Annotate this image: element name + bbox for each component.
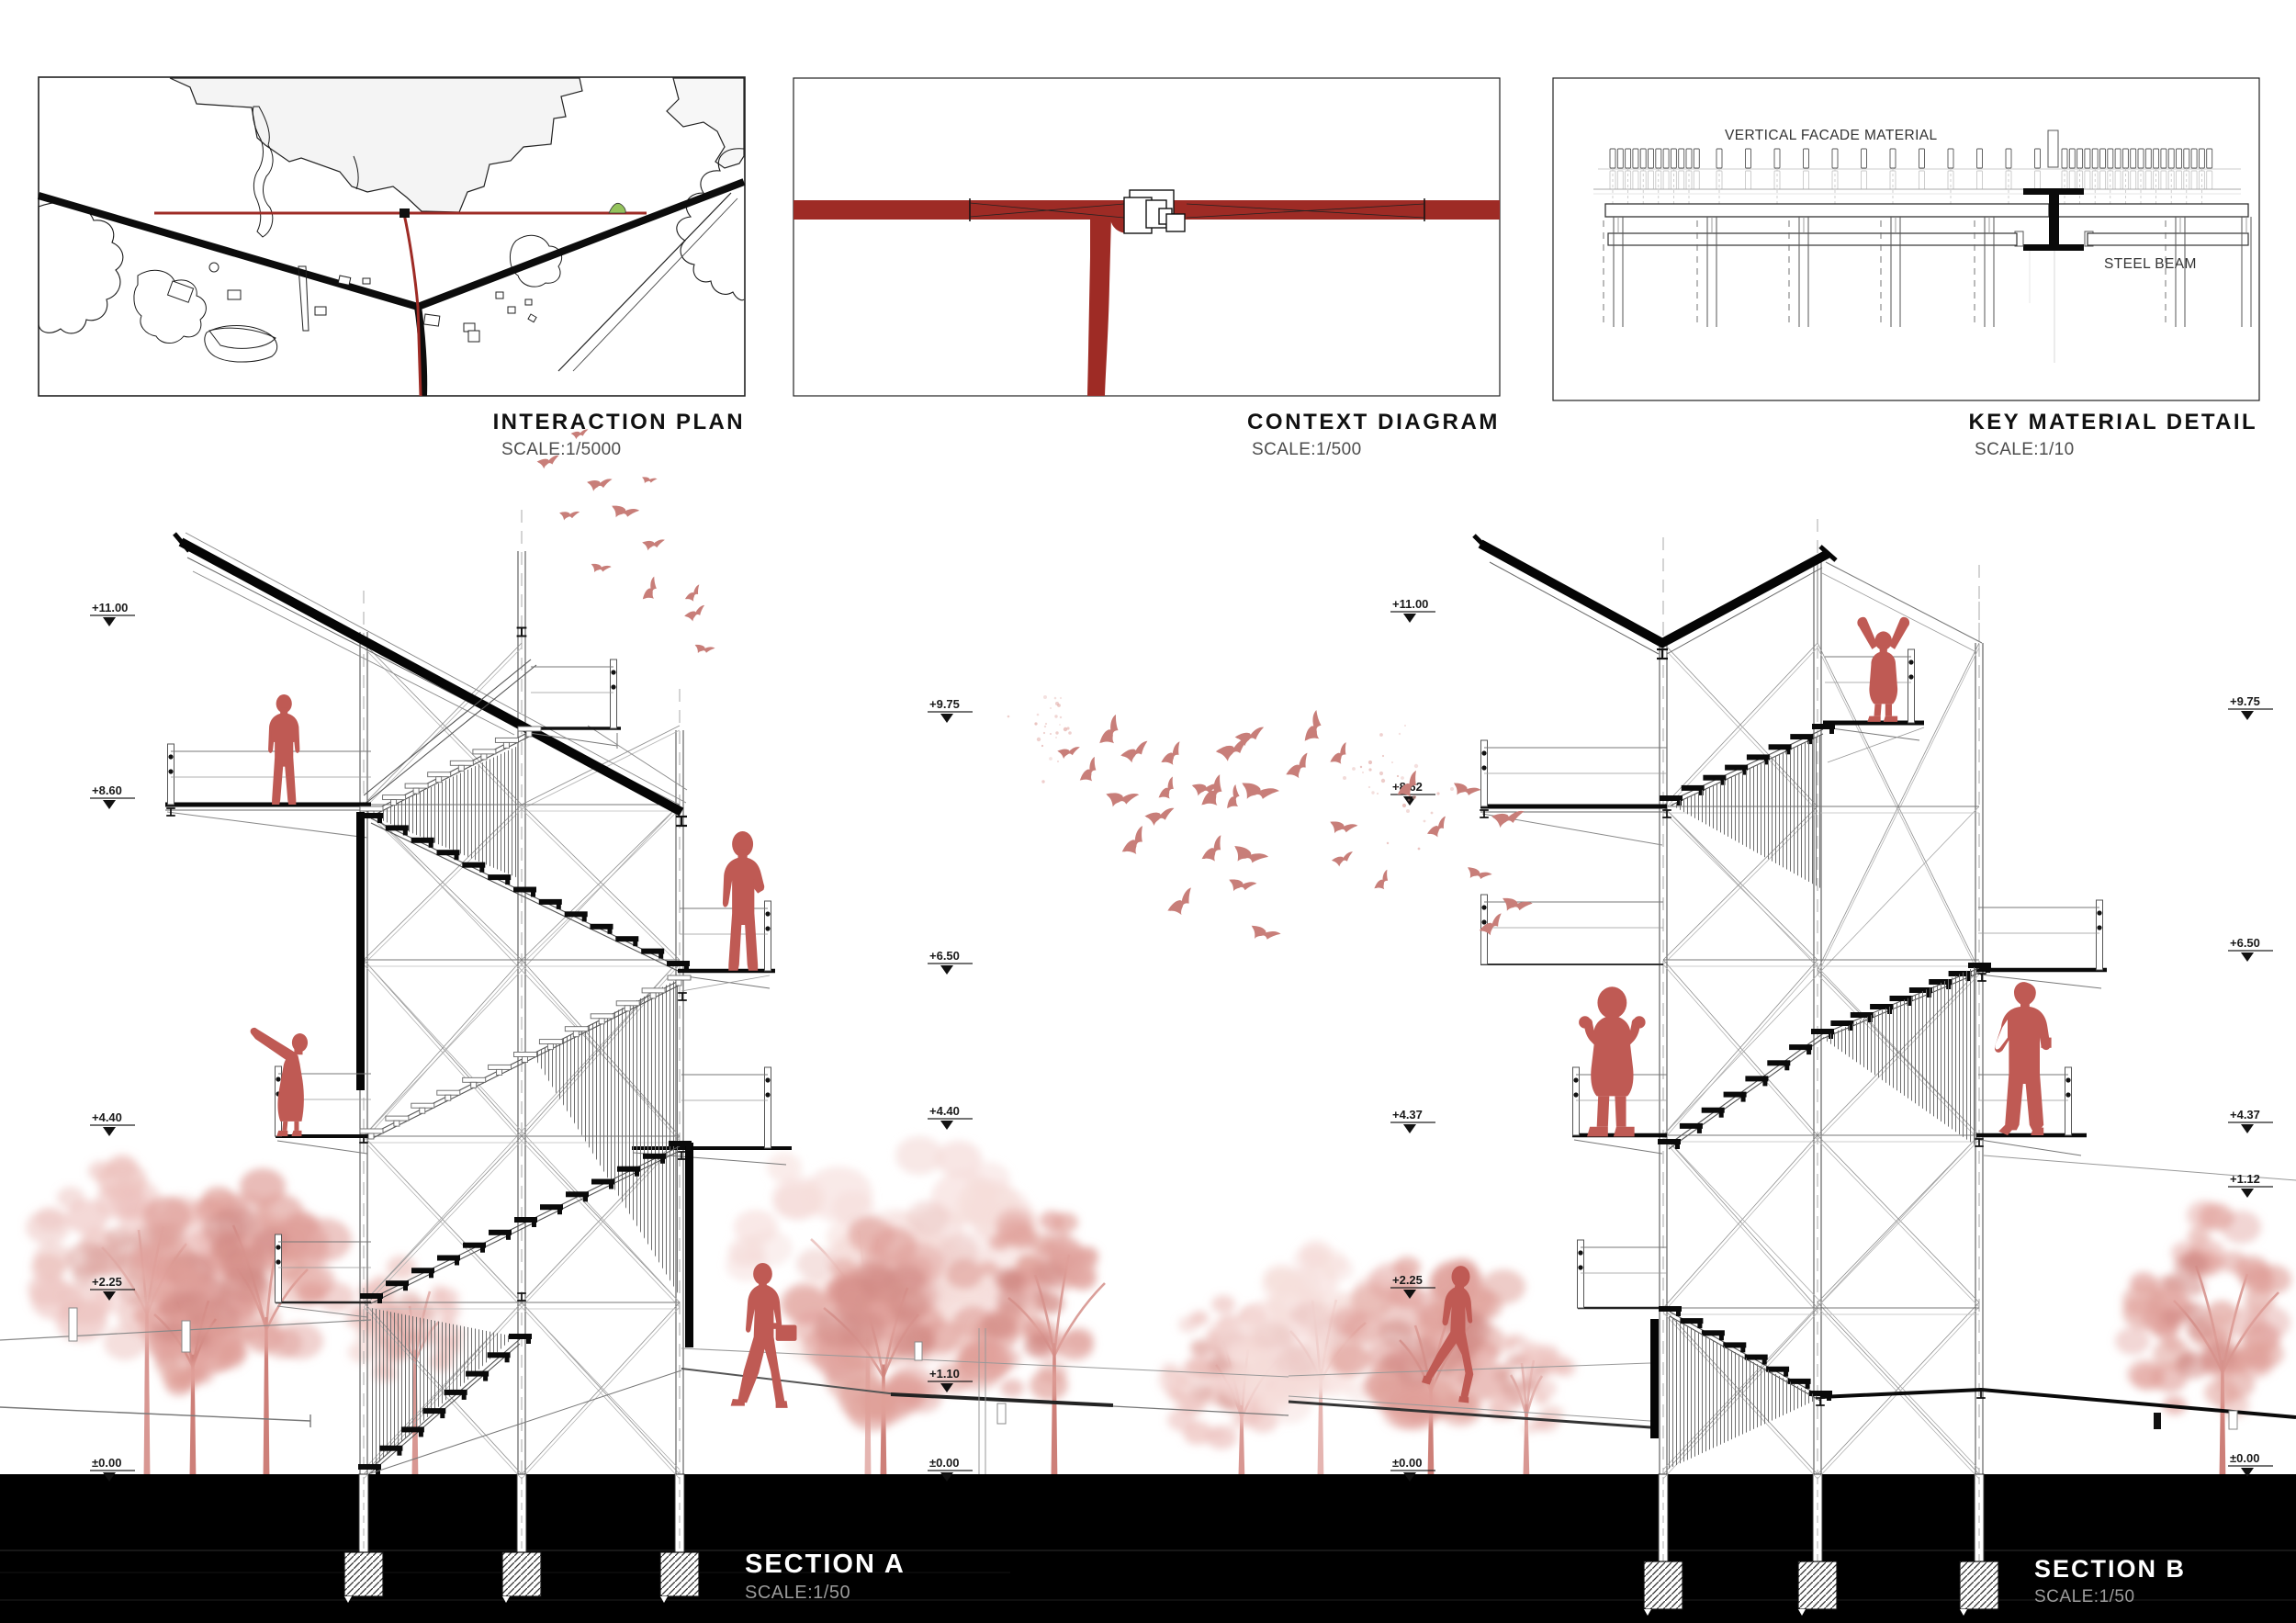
svg-text:+6.50: +6.50 xyxy=(929,949,960,963)
svg-text:CONTEXT DIAGRAM: CONTEXT DIAGRAM xyxy=(1247,410,1500,434)
svg-text:INTERACTION PLAN: INTERACTION PLAN xyxy=(493,410,745,434)
svg-text:SCALE:1/10: SCALE:1/10 xyxy=(1975,440,2075,459)
svg-text:+4.37: +4.37 xyxy=(1392,1108,1423,1121)
svg-text:+11.00: +11.00 xyxy=(92,601,128,614)
svg-text:+1.12: +1.12 xyxy=(2230,1172,2260,1186)
svg-text:+6.50: +6.50 xyxy=(2230,936,2260,950)
svg-text:+4.40: +4.40 xyxy=(929,1104,960,1118)
svg-text:±0.00: ±0.00 xyxy=(92,1456,121,1470)
svg-text:SCALE:1/5000: SCALE:1/5000 xyxy=(501,440,622,459)
svg-text:+9.75: +9.75 xyxy=(2230,694,2260,708)
svg-text:±0.00: ±0.00 xyxy=(929,1456,959,1470)
svg-text:SCALE:1/50: SCALE:1/50 xyxy=(2034,1587,2135,1606)
svg-text:+1.10: +1.10 xyxy=(929,1367,960,1381)
svg-text:±0.00: ±0.00 xyxy=(1392,1456,1422,1470)
svg-text:+2.25: +2.25 xyxy=(1392,1273,1423,1287)
svg-text:+9.75: +9.75 xyxy=(929,697,960,711)
svg-text:SECTION B: SECTION B xyxy=(2034,1555,2186,1583)
svg-text:+2.25: +2.25 xyxy=(92,1275,122,1289)
svg-text:SCALE:1/500: SCALE:1/500 xyxy=(1252,440,1362,459)
svg-text:+11.00: +11.00 xyxy=(1392,597,1428,611)
svg-text:+8.60: +8.60 xyxy=(92,783,122,797)
svg-text:SECTION A: SECTION A xyxy=(745,1550,906,1579)
svg-text:±0.00: ±0.00 xyxy=(2230,1451,2259,1465)
svg-text:KEY MATERIAL DETAIL: KEY MATERIAL DETAIL xyxy=(1969,410,2258,434)
svg-text:VERTICAL FACADE MATERIAL: VERTICAL FACADE MATERIAL xyxy=(1725,128,1938,143)
svg-text:+4.40: +4.40 xyxy=(92,1110,122,1124)
svg-text:STEEL BEAM: STEEL BEAM xyxy=(2104,256,2197,272)
svg-text:+4.37: +4.37 xyxy=(2230,1108,2260,1121)
svg-text:SCALE:1/50: SCALE:1/50 xyxy=(745,1583,850,1603)
